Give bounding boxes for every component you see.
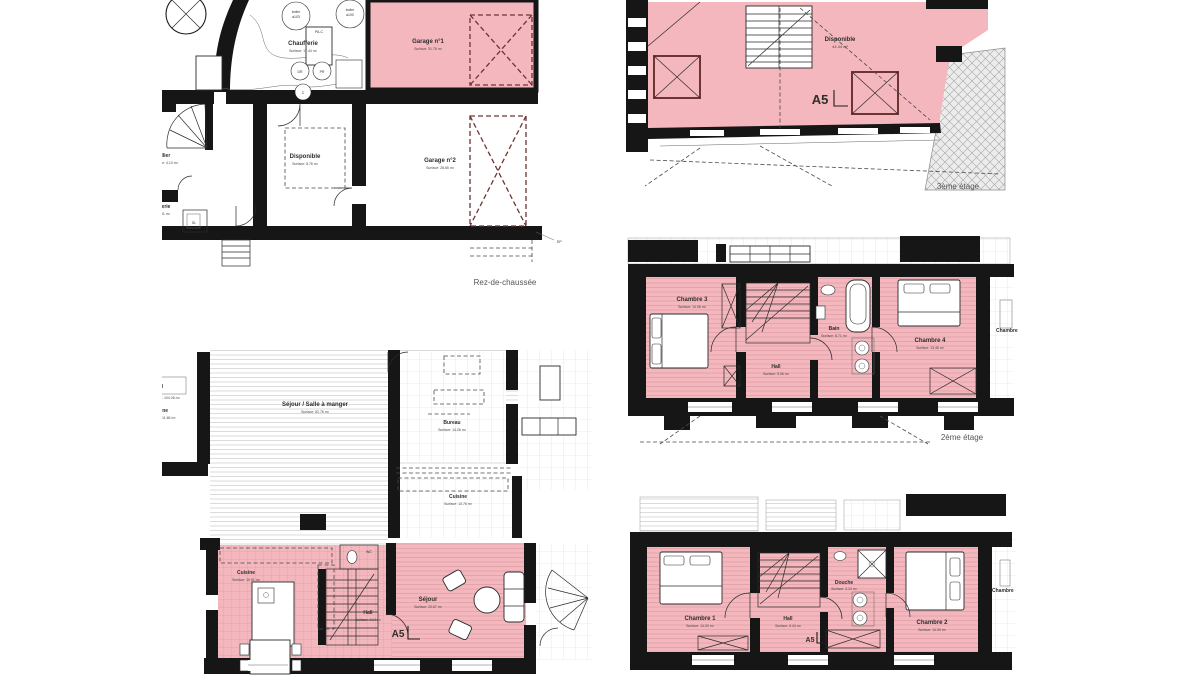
garage2-name: Garage n°2	[424, 158, 456, 164]
boiler1-label: boiler	[292, 10, 301, 14]
e3-stair	[746, 6, 812, 68]
n-hall-surface: Surface: 6.44 m²	[775, 624, 802, 628]
e3-unit-label: A5	[812, 92, 829, 107]
bain-name: Bain	[829, 326, 840, 332]
n-unit-label: A5	[806, 637, 815, 644]
n-hall-name: Hall	[783, 616, 793, 622]
n-partial-room-floor	[992, 534, 1016, 654]
cuisine-a03-name: Cuisine	[150, 408, 168, 414]
chaufferie-name: Chaufferie	[288, 41, 318, 47]
disponible-name: Disponible	[290, 154, 321, 160]
pac-label: PA-C	[315, 30, 324, 34]
boiler2-label: boiler	[346, 8, 355, 12]
garage1-name: Garage n°1	[412, 39, 444, 45]
n-top-wall-chunk	[906, 494, 1006, 516]
chambre1-name: Chambre 1	[684, 616, 716, 622]
garage1-surface: Surface: 31.76 m²	[414, 47, 443, 51]
sejour-a5-name: Séjour	[419, 597, 438, 603]
rdc-garage1-floor	[368, 0, 536, 90]
j-roof-dashes	[396, 468, 512, 473]
n-terrace-strip	[844, 500, 900, 530]
sejour-sam-name: Séjour / Salle à manger	[282, 402, 349, 408]
e2-partial-room-label: Chambre	[996, 328, 1018, 334]
bureau-name: Bureau	[443, 420, 460, 426]
j-hall-surface: Surface: 4.14 m²	[355, 618, 382, 622]
chambre2-name: Chambre 2	[916, 620, 948, 626]
buanderie-name: Buanderie	[146, 204, 171, 210]
bureau-surface: Surface: 14.26 m²	[438, 428, 467, 432]
sl-label: SL	[192, 221, 196, 225]
buanderie-surface: Surface: 6.31 m²	[144, 212, 171, 216]
a03-name: A03	[154, 384, 163, 390]
chambre4-name: Chambre 4	[914, 338, 946, 344]
bain-surface: Surface: 8.71 m²	[821, 334, 848, 338]
chambre1-surface: Surface: 14.03 m²	[686, 624, 715, 628]
cuisine-name: Cuisine	[449, 494, 467, 500]
n-partial-room-label: Chambre	[992, 588, 1014, 594]
dr-label: DR	[297, 70, 303, 74]
wc-label: WC	[366, 550, 372, 554]
chambre2-surface: Surface: 14.03 m²	[918, 628, 947, 632]
e2-floor-label: 2ème étage	[941, 433, 984, 442]
plan-rez-de-chaussee: boiler a103 boiler a100 PA-C Chaufferie …	[144, 0, 562, 287]
boiler2-id: a100	[346, 13, 354, 17]
j-bureau-floor	[400, 352, 506, 462]
cellier-name: Cellier	[155, 153, 170, 159]
j-hall-name: Hall	[363, 610, 373, 616]
cuisine-a5-name: Cuisine	[237, 570, 255, 576]
floor-plans-canvas: boiler a103 boiler a100 PA-C Chaufferie …	[0, 0, 1200, 675]
douche-surface: Surface: 3.13 m²	[831, 587, 858, 591]
e3-disponible-surface: 44.44 m²	[832, 44, 848, 49]
rdc-garage2-room	[470, 116, 526, 226]
e3-disponible-name: Disponible	[825, 37, 856, 43]
n-roof-strip1	[640, 497, 758, 531]
disponible-surface: Surface: 8.76 m²	[292, 162, 319, 166]
plan-1er-etage-jour: A03 Surface: 104.26 m² Cuisine Surface: …	[148, 350, 592, 674]
j-a03-label-box	[148, 377, 186, 394]
cuisine-surface: Surface: 13.76 m²	[444, 502, 473, 506]
boiler1-id: a103	[292, 15, 300, 19]
e2-balcony	[640, 416, 974, 444]
e2-hall-name: Hall	[771, 364, 781, 370]
chambre3-surface: Surface: 14.06 m²	[678, 305, 707, 309]
chambre3-name: Chambre 3	[676, 297, 708, 303]
j-hall-a5-floor	[334, 545, 392, 660]
ep-label: EP	[557, 240, 562, 244]
e2-hall-surface: Surface: 5.06 m²	[763, 372, 790, 376]
rdc-garage1-room	[368, 0, 536, 90]
cuisine-a5-surface: Surface: 10.91 m²	[232, 578, 261, 582]
a03-surface: Surface: 104.26 m²	[150, 396, 181, 400]
sejour-sam-surface: Surface: 52.76 m²	[301, 410, 330, 414]
j-sejour-sam-floor2	[210, 464, 388, 548]
plan-2eme-etage: Chambre 3 Surface: 14.06 m² Hall Surface…	[628, 236, 1018, 444]
rdc-small-stair	[222, 240, 250, 266]
rdc-north-symbol	[166, 0, 206, 34]
douche-name: Douche	[835, 580, 854, 586]
rdc-floor-label: Rez-de-chaussée	[474, 278, 537, 287]
pr-label: PR	[320, 70, 325, 74]
n-roof-strip2	[766, 500, 836, 530]
cellier-surface: Surface: 4.10 m²	[152, 161, 179, 165]
chaufferie-surface: Surface: 17.44 m²	[289, 49, 318, 53]
garage2-surface: Surface: 28.65 m²	[426, 166, 455, 170]
plan-1er-etage-nuit: Chambre 1 Surface: 14.03 m² Hall Surface…	[630, 494, 1016, 670]
e3-floor-label: 3ème étage	[937, 182, 980, 191]
j-cuisine-floor	[396, 476, 512, 538]
floor-plan-sheet: boiler a103 boiler a100 PA-C Chaufferie …	[0, 0, 1200, 675]
plan-3eme-etage: Disponible 44.44 m² A5 3ème étage	[626, 0, 1005, 191]
chambre4-surface: Surface: 13.46 m²	[916, 346, 945, 350]
j-unit-label: A5	[392, 629, 405, 640]
sejour-a5-surface: Surface: 20.67 m²	[414, 605, 443, 609]
cuisine-a03-surface: Surface: 11.65 m²	[148, 416, 176, 420]
